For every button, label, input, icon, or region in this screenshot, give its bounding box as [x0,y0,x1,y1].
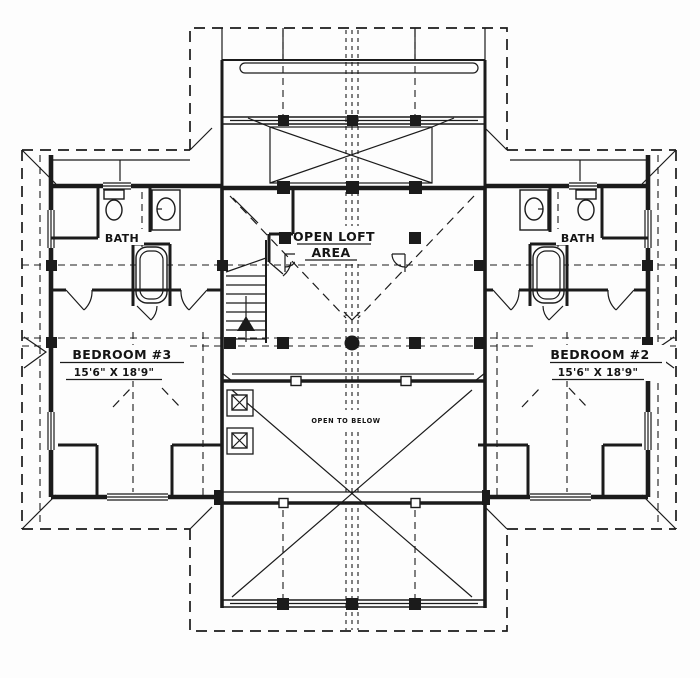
staircase [226,190,293,343]
toilet-icon [576,190,596,220]
open-loft-label-line1: OPEN LOFT [293,229,375,244]
bath-right [520,186,648,306]
closets-left [58,445,222,497]
door-swing [543,306,563,320]
bedroom3-label: BEDROOM #3 [72,347,171,362]
chimney [227,390,253,454]
deck-railing-lower [222,598,485,610]
door-swing [493,290,519,310]
sink-icon [520,190,548,230]
open-loft-label-line2: AREA [311,245,350,260]
door-swing [181,290,207,310]
left-wing [24,155,222,502]
door-swing [608,290,634,310]
bedroom2-label: BEDROOM #2 [550,347,649,362]
top-deck [222,28,485,188]
bedroom2-dimensions: 15'6" X 18'9" [558,367,639,379]
sink-icon [152,190,180,230]
window-swing-mark [24,337,46,368]
open-to-below-label: OPEN TO BELOW [311,417,380,425]
bath-label-left: BATH [105,232,139,245]
door-swing [137,306,157,320]
bedroom3-dimensions: 15'6" X 18'9" [74,367,155,379]
post [409,181,422,194]
bathtub-icon [530,244,567,306]
right-wing [478,155,674,502]
door-swing [66,290,92,310]
door-swing [269,262,291,276]
blueprint-sheet: OPEN LOFT AREA BATH BATH BEDROOM #3 15'6… [0,0,700,678]
floor-plan-drawing: OPEN LOFT AREA BATH BATH BEDROOM #3 15'6… [0,0,700,678]
bath-label-right: BATH [561,232,595,245]
deck-railing-upper [222,115,485,126]
closets-right [478,445,642,497]
post [346,181,359,194]
bath-left [51,186,180,306]
post [277,181,290,194]
post [409,232,421,244]
bathtub-icon [133,244,170,306]
dormer-door-icon [392,254,405,272]
toilet-icon [104,190,124,220]
